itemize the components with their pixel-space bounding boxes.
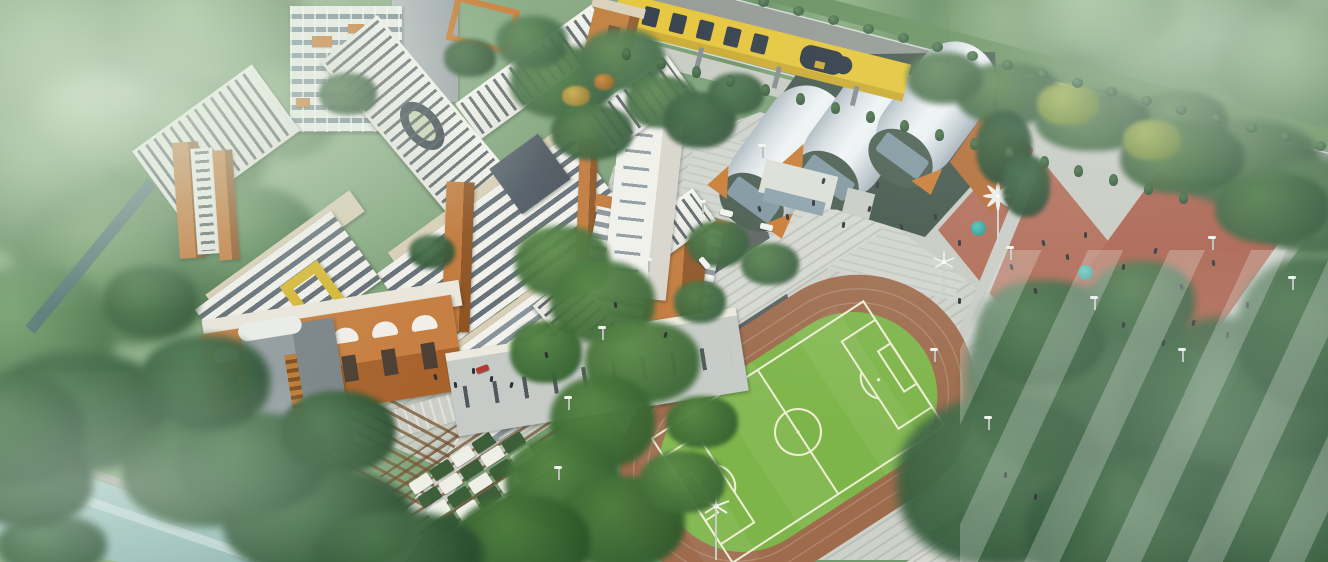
campus-aerial-rendering [0, 0, 1328, 562]
mow-stripe [710, 362, 843, 530]
gate-post [616, 28, 628, 55]
street-lamp [934, 350, 936, 362]
tree-blob [666, 396, 738, 448]
gate-canopy [612, 0, 911, 98]
orange-parapet [594, 193, 729, 233]
person-figure [433, 374, 438, 381]
track-lane-line [613, 268, 983, 562]
tree-blob [664, 92, 736, 148]
person-figure [663, 332, 668, 339]
hedge-tree [828, 15, 839, 25]
street-lamp [1212, 238, 1214, 250]
gym-vault [699, 67, 867, 251]
lamp-pole [762, 146, 764, 158]
floodlight [934, 252, 955, 298]
tree-blob [1215, 172, 1328, 244]
lamp-head [564, 396, 572, 399]
mow-stripe [626, 416, 759, 562]
street-tree [935, 129, 944, 141]
person-figure [821, 178, 826, 185]
street-lamp [702, 202, 704, 214]
tree-blob [626, 76, 698, 128]
white-car [719, 209, 733, 218]
tree-blob [687, 221, 749, 267]
hedge-tree [932, 42, 943, 52]
mow-stripe [794, 307, 927, 475]
gate-slot [668, 13, 687, 35]
entrance-gate [606, 0, 912, 123]
person-figure [812, 200, 815, 206]
lamp-head [1006, 246, 1014, 249]
lamp-head [644, 258, 652, 261]
window-strip [612, 118, 655, 282]
dorm-block [572, 202, 725, 358]
pergola-cap [628, 188, 716, 267]
lamp-pole [602, 328, 604, 340]
street-lamp [558, 468, 560, 480]
lamp-head [758, 144, 766, 147]
person-figure [614, 302, 618, 308]
person-figure [867, 206, 872, 213]
street-tree [831, 102, 840, 114]
arch-awning [410, 313, 438, 332]
soccer-field [626, 280, 969, 562]
street-tree [900, 120, 909, 132]
arch-awning [212, 345, 240, 364]
red-car [475, 364, 489, 374]
white-car [759, 223, 773, 232]
street-tree [622, 48, 631, 60]
person-figure [842, 222, 846, 228]
white-car [698, 256, 711, 270]
tree-blob [550, 261, 655, 343]
haze-top-left [0, 0, 560, 310]
school-emblem [798, 43, 855, 79]
gate-slot [641, 6, 660, 28]
person-figure [786, 214, 790, 220]
person-figure [934, 214, 938, 220]
colonnade-window [420, 342, 438, 370]
lamp-pole [648, 260, 650, 272]
haze-top-right [950, 0, 1328, 180]
street-lamp [648, 260, 650, 272]
street-lamp [602, 328, 604, 340]
street-tree [692, 66, 701, 78]
gate-tower [577, 0, 646, 77]
pitch-markings [652, 301, 944, 562]
lamp-pole [1212, 238, 1214, 250]
haze-bottom-right [960, 250, 1328, 562]
hedge-tree [898, 33, 909, 43]
tree-blob [640, 451, 725, 513]
lamp-head [598, 326, 606, 329]
pergola-cap [586, 55, 694, 151]
hedge-tree [863, 24, 874, 34]
track-lane-line [594, 249, 1002, 562]
tree-blob [615, 0, 785, 76]
gate-canopy-edge [611, 21, 904, 101]
street-tree [1144, 183, 1153, 195]
gate-post [772, 66, 782, 89]
tree-blob [594, 74, 614, 90]
tree-blob [770, 0, 960, 75]
arch-awning [331, 326, 359, 345]
person-figure [454, 382, 458, 388]
street-tree [761, 84, 770, 96]
gate-slot [696, 19, 715, 41]
lamp-pole [558, 468, 560, 480]
gate-post [694, 47, 705, 71]
street-lamp [568, 398, 570, 410]
tree-blob [580, 29, 665, 91]
street-lamp [762, 146, 764, 158]
lamp-pole [934, 350, 936, 362]
entry-canopy [237, 315, 303, 343]
teal-tree [971, 221, 986, 236]
floodlight [703, 493, 729, 560]
street-tree [657, 57, 666, 69]
hedge-tree [758, 0, 769, 7]
arch-awning [370, 320, 398, 339]
tree-blob [560, 476, 685, 562]
tree-blob [674, 281, 726, 323]
stair-tower [602, 99, 686, 301]
running-track [574, 230, 1021, 562]
gym-entrance [756, 159, 877, 227]
orange-block [642, 224, 708, 342]
plaza-mast-sculpture [983, 181, 1013, 244]
street-tree [1179, 192, 1188, 204]
person-figure [876, 182, 880, 188]
gate-post [850, 86, 860, 107]
lamp-head [1208, 236, 1216, 239]
tree-blob [708, 73, 764, 115]
gate-slot [750, 33, 769, 55]
arch-awning [252, 338, 280, 357]
person-figure [472, 368, 475, 374]
tree-blob [741, 243, 799, 285]
lamp-pole [568, 398, 570, 410]
haze-bottom-left [0, 370, 430, 562]
tree-blob [551, 104, 633, 160]
person-figure [1041, 240, 1046, 247]
street-tree [866, 111, 875, 123]
tree-blob [562, 86, 590, 106]
gate-slot [723, 26, 742, 48]
gym-vault [774, 45, 938, 226]
person-figure [899, 224, 904, 231]
street-tree [796, 93, 805, 105]
person-figure [544, 352, 549, 359]
orange-tower [576, 138, 598, 261]
lamp-head [698, 200, 706, 203]
person-figure [958, 240, 961, 246]
parking-lot [630, 198, 798, 344]
person-figure [1084, 232, 1087, 238]
lamp-head [930, 348, 938, 351]
person-figure [757, 206, 762, 213]
lamp-pole [702, 202, 704, 214]
street-tree [726, 75, 735, 87]
arch-awning [291, 332, 319, 351]
hedge-tree [793, 6, 804, 16]
